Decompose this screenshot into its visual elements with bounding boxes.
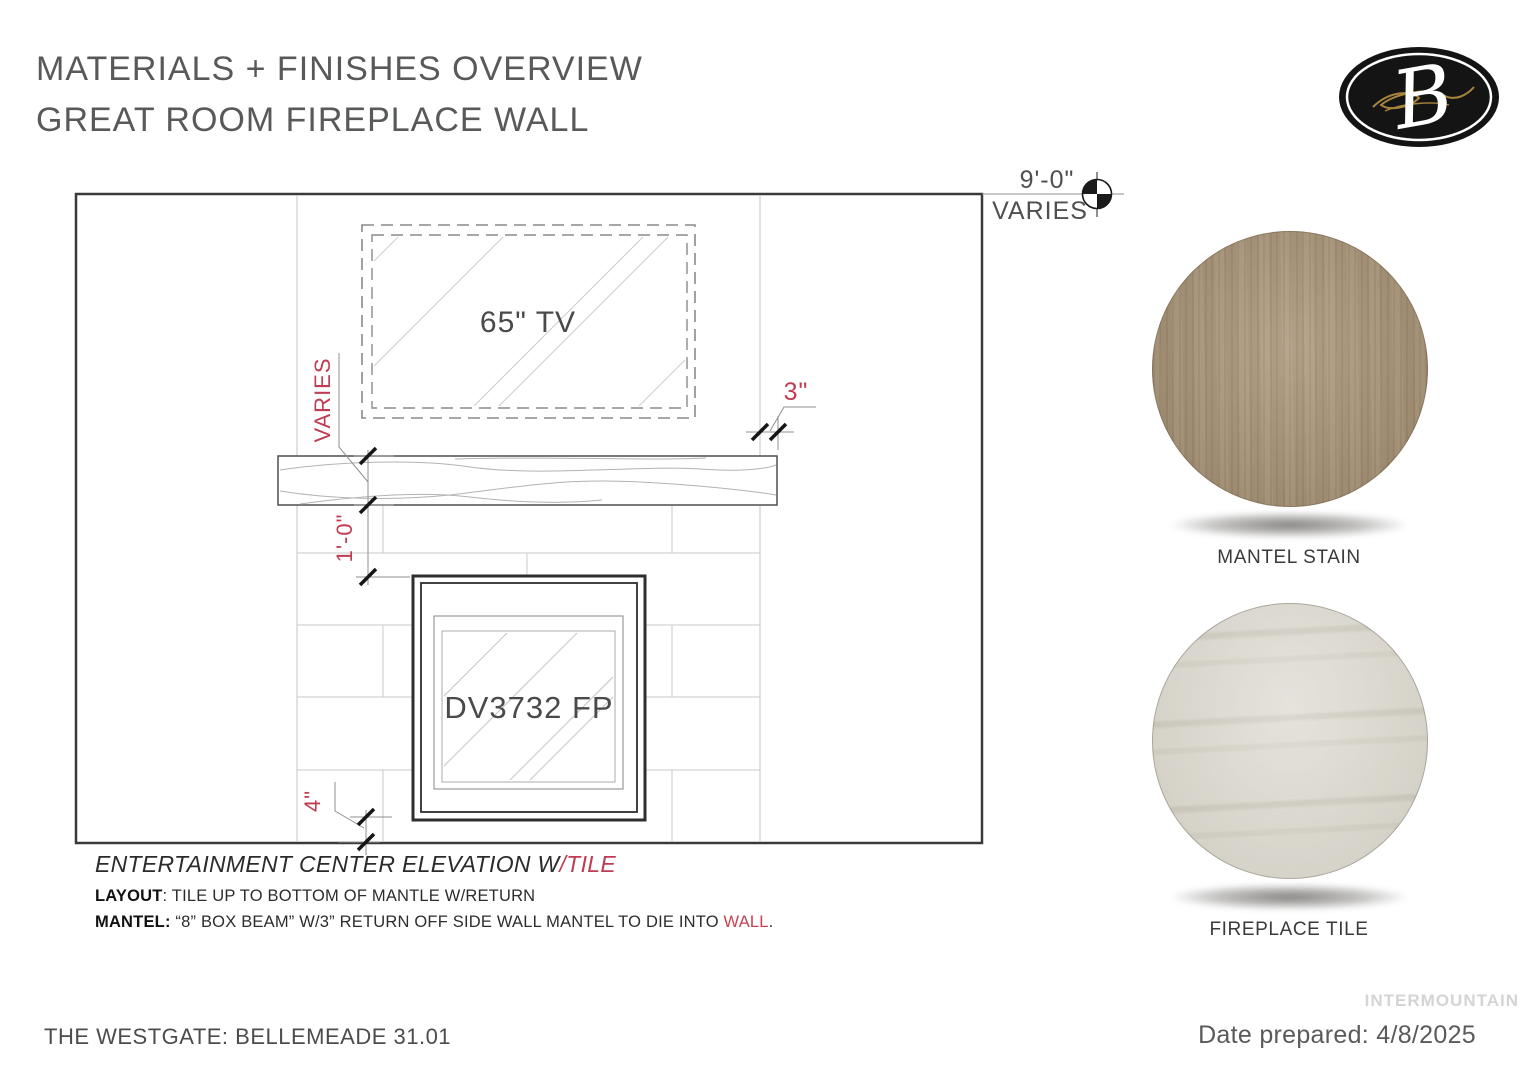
dim-3in-label: 3"	[784, 378, 809, 406]
fireplace-elevation-drawing: 65" TV DV3732 FP	[0, 160, 1150, 865]
date-prepared: Date prepared: 4/8/2025	[1198, 1021, 1476, 1050]
tv-label: 65" TV	[480, 306, 576, 339]
materials-finishes-sheet: MATERIALS + FINISHES OVERVIEW GREAT ROOM…	[0, 0, 1528, 1080]
dim-1ft-label: 1'-0"	[332, 514, 357, 563]
drawing-caption-block: ENTERTAINMENT CENTER ELEVATION W/TILE LA…	[95, 851, 773, 932]
caption-accent: /TILE	[560, 851, 616, 877]
dim-wall-width-label: 9'-0"	[1020, 166, 1075, 194]
fireplace-tile-swatch	[1152, 603, 1428, 879]
mantel-stain-swatch-shadow	[1170, 512, 1408, 538]
dim-4in-label: 4"	[300, 790, 325, 812]
fireplace-label: DV3732 FP	[444, 690, 613, 725]
fireplace-tile-swatch-shadow	[1170, 884, 1408, 910]
top-dimension: 9'-0" VARIES	[982, 166, 1124, 225]
mantel-stain-label: MANTEL STAIN	[1152, 547, 1426, 569]
dim-varies-label: VARIES	[310, 357, 335, 442]
mantel-stain-swatch	[1152, 231, 1428, 507]
watermark: INTERMOUNTAIN	[1365, 991, 1519, 1011]
brand-logo: B	[1337, 45, 1501, 151]
mantel-note-accent: WALL	[724, 913, 769, 931]
drawing-caption: ENTERTAINMENT CENTER ELEVATION W/TILE	[95, 851, 773, 878]
project-name: THE WESTGATE: BELLEMEADE 31.01	[44, 1024, 451, 1050]
fireplace-tile-label: FIREPLACE TILE	[1152, 919, 1426, 941]
mantel-note: MANTEL: “8” BOX BEAM” W/3” RETURN OFF SI…	[95, 913, 773, 932]
page-title-line1: MATERIALS + FINISHES OVERVIEW	[36, 44, 643, 95]
page-title-line2: GREAT ROOM FIREPLACE WALL	[36, 95, 643, 146]
page-title: MATERIALS + FINISHES OVERVIEW GREAT ROOM…	[36, 44, 643, 146]
layout-note: LAYOUT: TILE UP TO BOTTOM OF MANTLE W/RE…	[95, 887, 773, 906]
dim-wall-width-note: VARIES	[992, 197, 1088, 225]
